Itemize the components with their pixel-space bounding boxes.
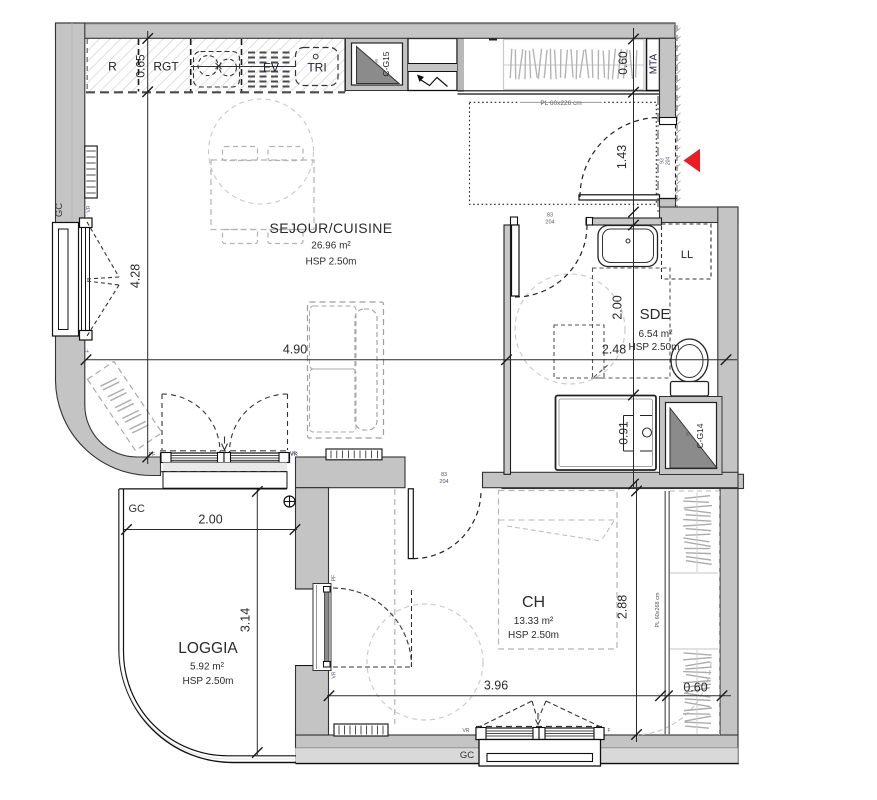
svg-text:6.54 m²: 6.54 m² (639, 329, 674, 340)
svg-text:0.91: 0.91 (617, 421, 631, 445)
svg-text:PF: PF (332, 575, 338, 581)
svg-text:83: 83 (441, 472, 447, 478)
svg-text:GC: GC (460, 750, 474, 761)
svg-text:GC: GC (54, 203, 65, 217)
svg-text:2.00: 2.00 (611, 295, 625, 319)
svg-text:1.43: 1.43 (615, 145, 629, 169)
svg-text:SDE: SDE (640, 306, 671, 323)
svg-text:PL 60x226 cm: PL 60x226 cm (540, 100, 581, 107)
svg-text:2.48: 2.48 (602, 343, 626, 357)
svg-text:VR: VR (86, 205, 92, 212)
svg-text:204: 204 (439, 479, 448, 485)
svg-text:HSP 2.50m: HSP 2.50m (508, 630, 559, 641)
svg-text:EV: EV (263, 61, 279, 75)
svg-text:0.60: 0.60 (683, 681, 707, 695)
svg-text:83: 83 (547, 213, 553, 219)
svg-text:5.92 m²: 5.92 m² (190, 662, 225, 673)
svg-text:13.33 m²: 13.33 m² (514, 616, 554, 627)
svg-text:C-G15: C-G15 (381, 51, 391, 76)
svg-text:F: F (607, 728, 610, 734)
svg-text:26.96 m²: 26.96 m² (311, 241, 351, 252)
svg-text:3.14: 3.14 (239, 608, 253, 632)
svg-text:SEJOUR/CUISINE: SEJOUR/CUISINE (269, 220, 392, 236)
svg-text:R: R (108, 60, 117, 74)
svg-text:F: F (85, 349, 91, 352)
svg-text:C-G14: C-G14 (695, 423, 705, 448)
svg-text:CH: CH (522, 594, 545, 611)
svg-text:3.96: 3.96 (484, 679, 508, 693)
svg-text:0.65: 0.65 (134, 54, 148, 78)
svg-text:LOGGIA: LOGGIA (178, 640, 238, 657)
svg-text:TRI: TRI (307, 61, 326, 75)
svg-text:HSP 2.50m: HSP 2.50m (306, 257, 357, 268)
svg-text:su: su (374, 58, 379, 63)
svg-text:PL 60x268 cm: PL 60x268 cm (655, 592, 661, 627)
svg-text:LL: LL (681, 249, 693, 261)
svg-text:GC: GC (128, 503, 145, 515)
svg-text:204: 204 (545, 220, 554, 226)
svg-text:HSP 2.50m: HSP 2.50m (629, 342, 680, 353)
svg-text:0.60: 0.60 (616, 51, 630, 75)
svg-text:su: su (685, 431, 690, 436)
svg-text:MTA: MTA (649, 53, 660, 74)
svg-text:RGT: RGT (153, 60, 179, 74)
svg-text:VR: VR (463, 728, 470, 734)
svg-text:4.28: 4.28 (129, 264, 143, 288)
svg-text:4.90: 4.90 (283, 343, 307, 357)
svg-text:HSP 2.50m: HSP 2.50m (183, 676, 234, 687)
svg-text:2.88: 2.88 (616, 595, 630, 619)
svg-text:VR: VR (290, 452, 298, 458)
svg-text:VR: VR (332, 671, 338, 678)
svg-text:2.00: 2.00 (198, 513, 222, 527)
svg-text:204: 204 (666, 157, 672, 166)
